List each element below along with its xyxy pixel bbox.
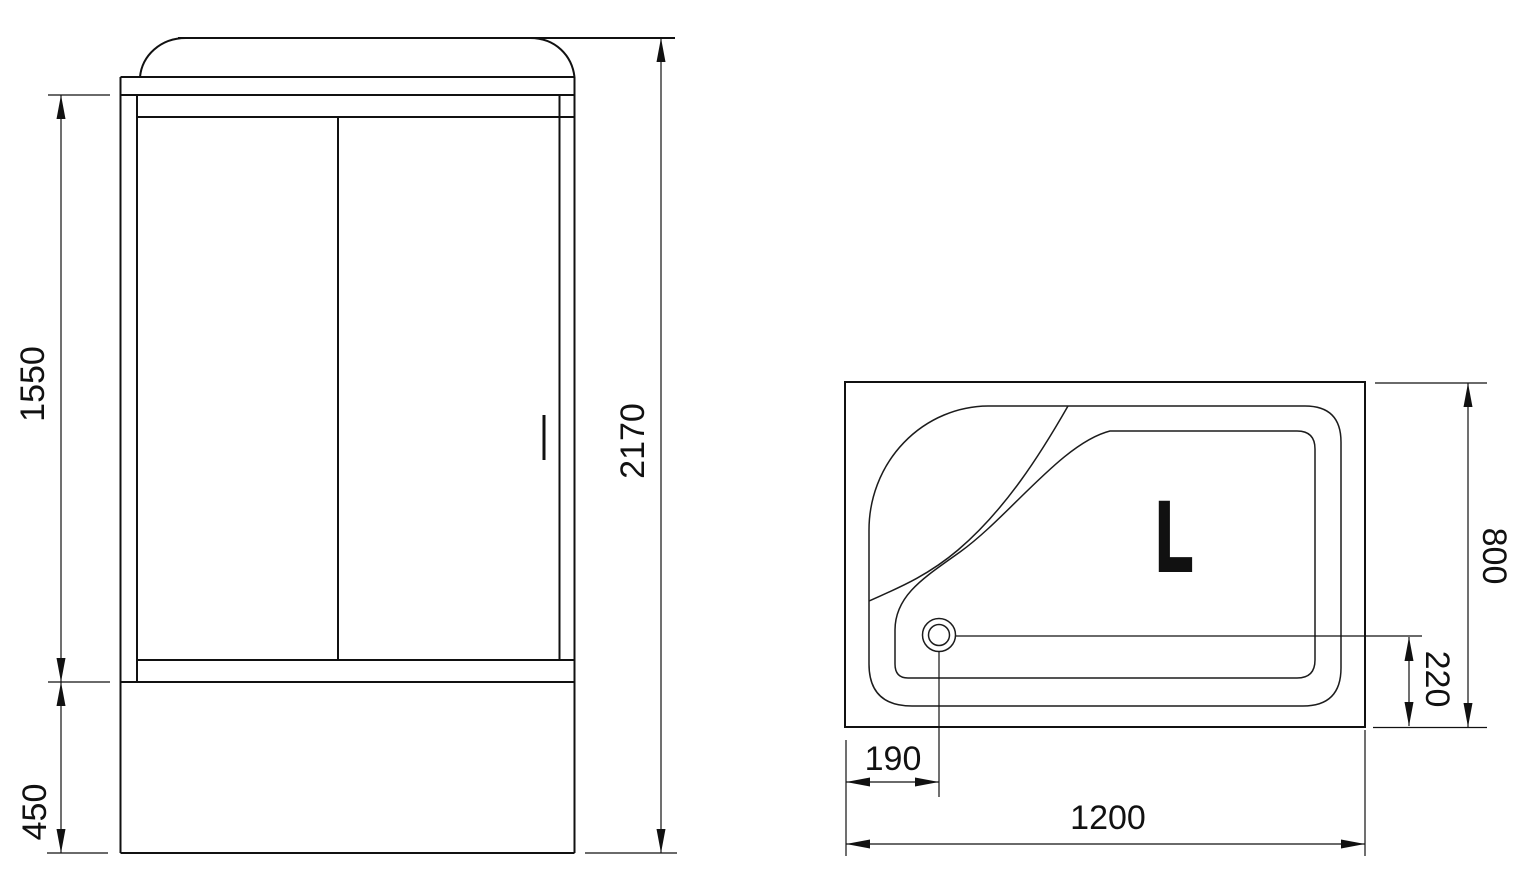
arrowhead-down bbox=[57, 658, 66, 682]
arrowhead-up bbox=[1405, 637, 1414, 661]
arrowhead-up bbox=[57, 682, 66, 706]
dim-label-tray-depth: 800 bbox=[1475, 528, 1513, 585]
front-view-dimensions: 1550 450 2170 bbox=[14, 38, 677, 853]
arrowhead-down bbox=[657, 829, 666, 853]
dim-label-tray-width: 1200 bbox=[1070, 799, 1146, 837]
arrowhead-right bbox=[1341, 840, 1365, 849]
drain-outer-circle bbox=[923, 619, 956, 652]
arrowhead-up bbox=[657, 38, 666, 62]
front-view bbox=[121, 38, 676, 853]
drawing-canvas: 1550 450 2170 L bbox=[0, 0, 1522, 888]
roof-left-arc bbox=[140, 38, 186, 77]
dim-label-base-height: 450 bbox=[16, 784, 54, 841]
arrowhead-down bbox=[57, 829, 66, 853]
arrowhead-left bbox=[846, 778, 870, 787]
roof-right-arc bbox=[530, 38, 575, 77]
dim-label-total-height: 2170 bbox=[614, 403, 652, 479]
dim-label-drain-left: 190 bbox=[865, 740, 922, 778]
arrowhead-up bbox=[57, 95, 66, 119]
dim-label-drain-bottom: 220 bbox=[1418, 651, 1456, 708]
arrowhead-down bbox=[1405, 702, 1414, 726]
orientation-label: L bbox=[1156, 483, 1193, 591]
dim-label-door-height: 1550 bbox=[14, 346, 52, 422]
shower-cabin-technical-drawing: 1550 450 2170 L bbox=[0, 0, 1522, 888]
tray-outer-rect bbox=[845, 382, 1365, 727]
basin-outline bbox=[895, 431, 1315, 678]
arrowhead-down bbox=[1464, 703, 1473, 727]
drain-inner-circle bbox=[929, 625, 950, 646]
tray-outline bbox=[869, 406, 1341, 706]
arrowhead-right bbox=[915, 778, 939, 787]
arrowhead-left bbox=[846, 840, 870, 849]
plan-view: L bbox=[845, 382, 1422, 797]
arrowhead-up bbox=[1464, 383, 1473, 407]
seat-curve bbox=[869, 406, 1068, 601]
